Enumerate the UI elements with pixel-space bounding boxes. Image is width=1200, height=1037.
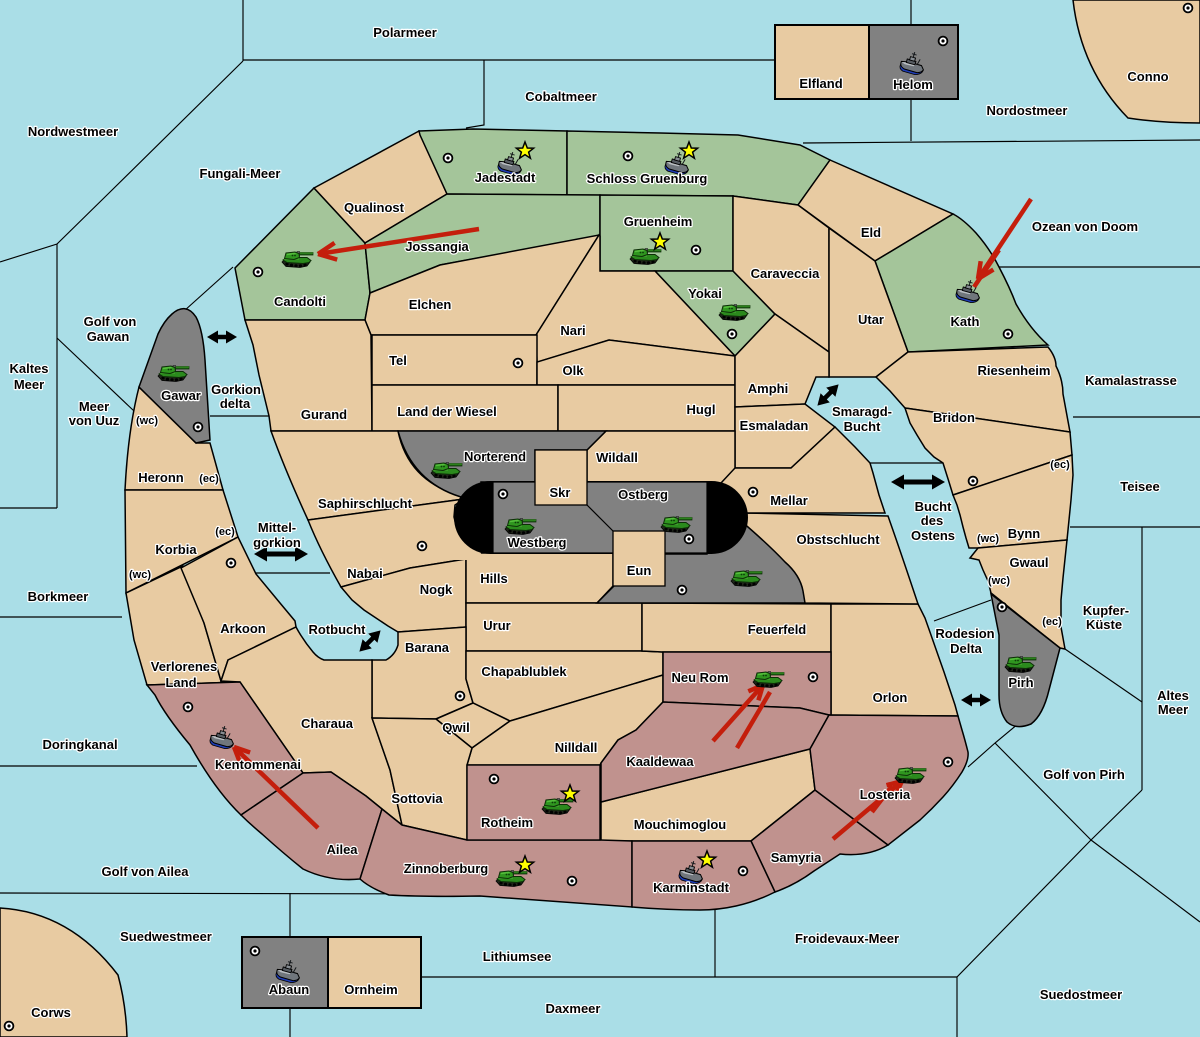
svg-text:Barana: Barana (405, 640, 450, 655)
svg-text:Meer: Meer (1158, 702, 1188, 717)
svg-text:Gwaul: Gwaul (1009, 555, 1048, 570)
svg-text:Arkoon: Arkoon (220, 621, 266, 636)
svg-text:Land: Land (165, 675, 196, 690)
svg-text:Froidevaux-Meer: Froidevaux-Meer (795, 931, 899, 946)
svg-text:Rodesion: Rodesion (935, 626, 994, 641)
svg-text:Zinnoberburg: Zinnoberburg (404, 861, 489, 876)
svg-text:Hugl: Hugl (687, 402, 716, 417)
svg-text:Hills: Hills (480, 571, 507, 586)
svg-text:Saphirschlucht: Saphirschlucht (318, 496, 413, 511)
svg-text:Yokai: Yokai (688, 286, 722, 301)
svg-text:Meer: Meer (79, 399, 109, 414)
svg-text:Bucht: Bucht (844, 419, 882, 434)
svg-text:(ec): (ec) (1042, 616, 1062, 628)
svg-text:Amphi: Amphi (748, 381, 788, 396)
svg-text:Nordostmeer: Nordostmeer (987, 103, 1068, 118)
svg-text:Westberg: Westberg (508, 535, 567, 550)
svg-text:Qwil: Qwil (442, 720, 469, 735)
svg-text:Norterend: Norterend (464, 449, 526, 464)
svg-text:Verlorenes: Verlorenes (151, 659, 218, 674)
svg-text:Helom: Helom (893, 77, 933, 92)
svg-text:Smaragd-: Smaragd- (832, 404, 892, 419)
svg-text:Teisee: Teisee (1120, 479, 1160, 494)
svg-text:Elchen: Elchen (409, 297, 452, 312)
svg-text:Fungali-Meer: Fungali-Meer (200, 166, 281, 181)
svg-text:Chapablublek: Chapablublek (481, 664, 567, 679)
svg-text:Golf von: Golf von (84, 314, 137, 329)
svg-text:Rotheim: Rotheim (481, 815, 533, 830)
svg-text:Esmaladan: Esmaladan (740, 418, 809, 433)
svg-text:Gruenheim: Gruenheim (624, 214, 693, 229)
svg-text:Orlon: Orlon (873, 690, 908, 705)
svg-text:Polarmeer: Polarmeer (373, 25, 437, 40)
svg-text:Kaltes: Kaltes (9, 361, 48, 376)
svg-text:delta: delta (220, 396, 251, 411)
svg-text:Olk: Olk (563, 363, 585, 378)
svg-text:Gawar: Gawar (161, 388, 201, 403)
svg-text:gorkion: gorkion (253, 535, 301, 550)
svg-text:Jadestadt: Jadestadt (475, 170, 536, 185)
svg-text:(ec): (ec) (1050, 459, 1070, 471)
svg-text:Conno: Conno (1127, 69, 1168, 84)
svg-text:Schloss Gruenburg: Schloss Gruenburg (587, 171, 708, 186)
svg-text:Corws: Corws (31, 1005, 71, 1020)
svg-text:Caraveccia: Caraveccia (751, 266, 820, 281)
svg-text:Mellar: Mellar (770, 493, 808, 508)
svg-text:Obstschlucht: Obstschlucht (796, 532, 880, 547)
svg-text:Cobaltmeer: Cobaltmeer (525, 89, 597, 104)
svg-text:Pirh: Pirh (1008, 675, 1033, 690)
svg-text:(ec): (ec) (215, 526, 235, 538)
svg-text:Ozean von Doom: Ozean von Doom (1032, 219, 1138, 234)
svg-text:(wc): (wc) (988, 575, 1010, 587)
svg-text:des: des (921, 513, 943, 528)
svg-text:Doringkanal: Doringkanal (42, 737, 117, 752)
svg-text:Skr: Skr (550, 485, 571, 500)
svg-text:Bucht: Bucht (915, 499, 953, 514)
svg-text:von Uuz: von Uuz (69, 413, 120, 428)
svg-text:Charaua: Charaua (301, 716, 354, 731)
svg-text:Samyria: Samyria (771, 850, 822, 865)
svg-text:Riesenheim: Riesenheim (978, 363, 1051, 378)
svg-text:Gorkion: Gorkion (211, 382, 261, 397)
svg-text:Daxmeer: Daxmeer (546, 1001, 601, 1016)
svg-text:Karminstadt: Karminstadt (653, 880, 730, 895)
svg-text:Losteria: Losteria (860, 787, 911, 802)
svg-text:Korbia: Korbia (155, 542, 197, 557)
svg-text:Mittel-: Mittel- (258, 520, 296, 535)
svg-text:Meer: Meer (14, 377, 44, 392)
svg-text:Delta: Delta (950, 641, 983, 656)
svg-text:Golf von Pirh: Golf von Pirh (1043, 767, 1125, 782)
svg-text:Sottovia: Sottovia (391, 791, 443, 806)
svg-text:(wc): (wc) (136, 415, 158, 427)
svg-text:Kentommenai: Kentommenai (215, 757, 301, 772)
svg-text:Wildall: Wildall (596, 450, 638, 465)
svg-text:Ailea: Ailea (326, 842, 358, 857)
svg-text:Eun: Eun (627, 563, 652, 578)
svg-text:Mouchimoglou: Mouchimoglou (634, 817, 726, 832)
svg-text:Suedostmeer: Suedostmeer (1040, 987, 1122, 1002)
svg-text:Tel: Tel (389, 353, 407, 368)
svg-text:Qualinost: Qualinost (344, 200, 405, 215)
svg-text:Gurand: Gurand (301, 407, 347, 422)
svg-text:Eld: Eld (861, 225, 881, 240)
svg-text:Bynn: Bynn (1008, 526, 1041, 541)
svg-text:Kamalastrasse: Kamalastrasse (1085, 373, 1177, 388)
svg-text:Bridon: Bridon (933, 410, 975, 425)
svg-text:Ostberg: Ostberg (618, 487, 668, 502)
svg-text:Gawan: Gawan (87, 329, 130, 344)
svg-text:Borkmeer: Borkmeer (28, 589, 89, 604)
svg-text:Kaaldewaa: Kaaldewaa (626, 754, 694, 769)
svg-text:Neu Rom: Neu Rom (671, 670, 728, 685)
svg-text:Kupfer-: Kupfer- (1083, 603, 1129, 618)
svg-text:Küste: Küste (1086, 617, 1122, 632)
svg-text:Abaun: Abaun (269, 982, 310, 997)
svg-text:Nordwestmeer: Nordwestmeer (28, 124, 118, 139)
svg-text:Nogk: Nogk (420, 582, 453, 597)
svg-text:Ornheim: Ornheim (344, 982, 397, 997)
svg-text:Ostens: Ostens (911, 528, 955, 543)
svg-text:Nari: Nari (560, 323, 585, 338)
svg-text:Land der Wiesel: Land der Wiesel (397, 404, 497, 419)
svg-text:(wc): (wc) (977, 533, 999, 545)
svg-text:Elfland: Elfland (799, 76, 842, 91)
svg-text:Golf von Ailea: Golf von Ailea (102, 864, 190, 879)
svg-text:Jossangia: Jossangia (405, 239, 469, 254)
svg-text:Rotbucht: Rotbucht (308, 622, 366, 637)
svg-text:Lithiumsee: Lithiumsee (483, 949, 552, 964)
svg-text:Utar: Utar (858, 312, 884, 327)
svg-text:Nabai: Nabai (347, 566, 382, 581)
svg-text:Kath: Kath (951, 314, 980, 329)
svg-text:(wc): (wc) (129, 569, 151, 581)
svg-text:Altes: Altes (1157, 688, 1189, 703)
svg-text:Nilldall: Nilldall (555, 740, 598, 755)
svg-text:Suedwestmeer: Suedwestmeer (120, 929, 212, 944)
svg-text:Heronn: Heronn (138, 470, 184, 485)
svg-text:(ec): (ec) (199, 473, 219, 485)
svg-text:Urur: Urur (483, 618, 510, 633)
svg-text:Candolti: Candolti (274, 294, 326, 309)
svg-text:Feuerfeld: Feuerfeld (748, 622, 807, 637)
